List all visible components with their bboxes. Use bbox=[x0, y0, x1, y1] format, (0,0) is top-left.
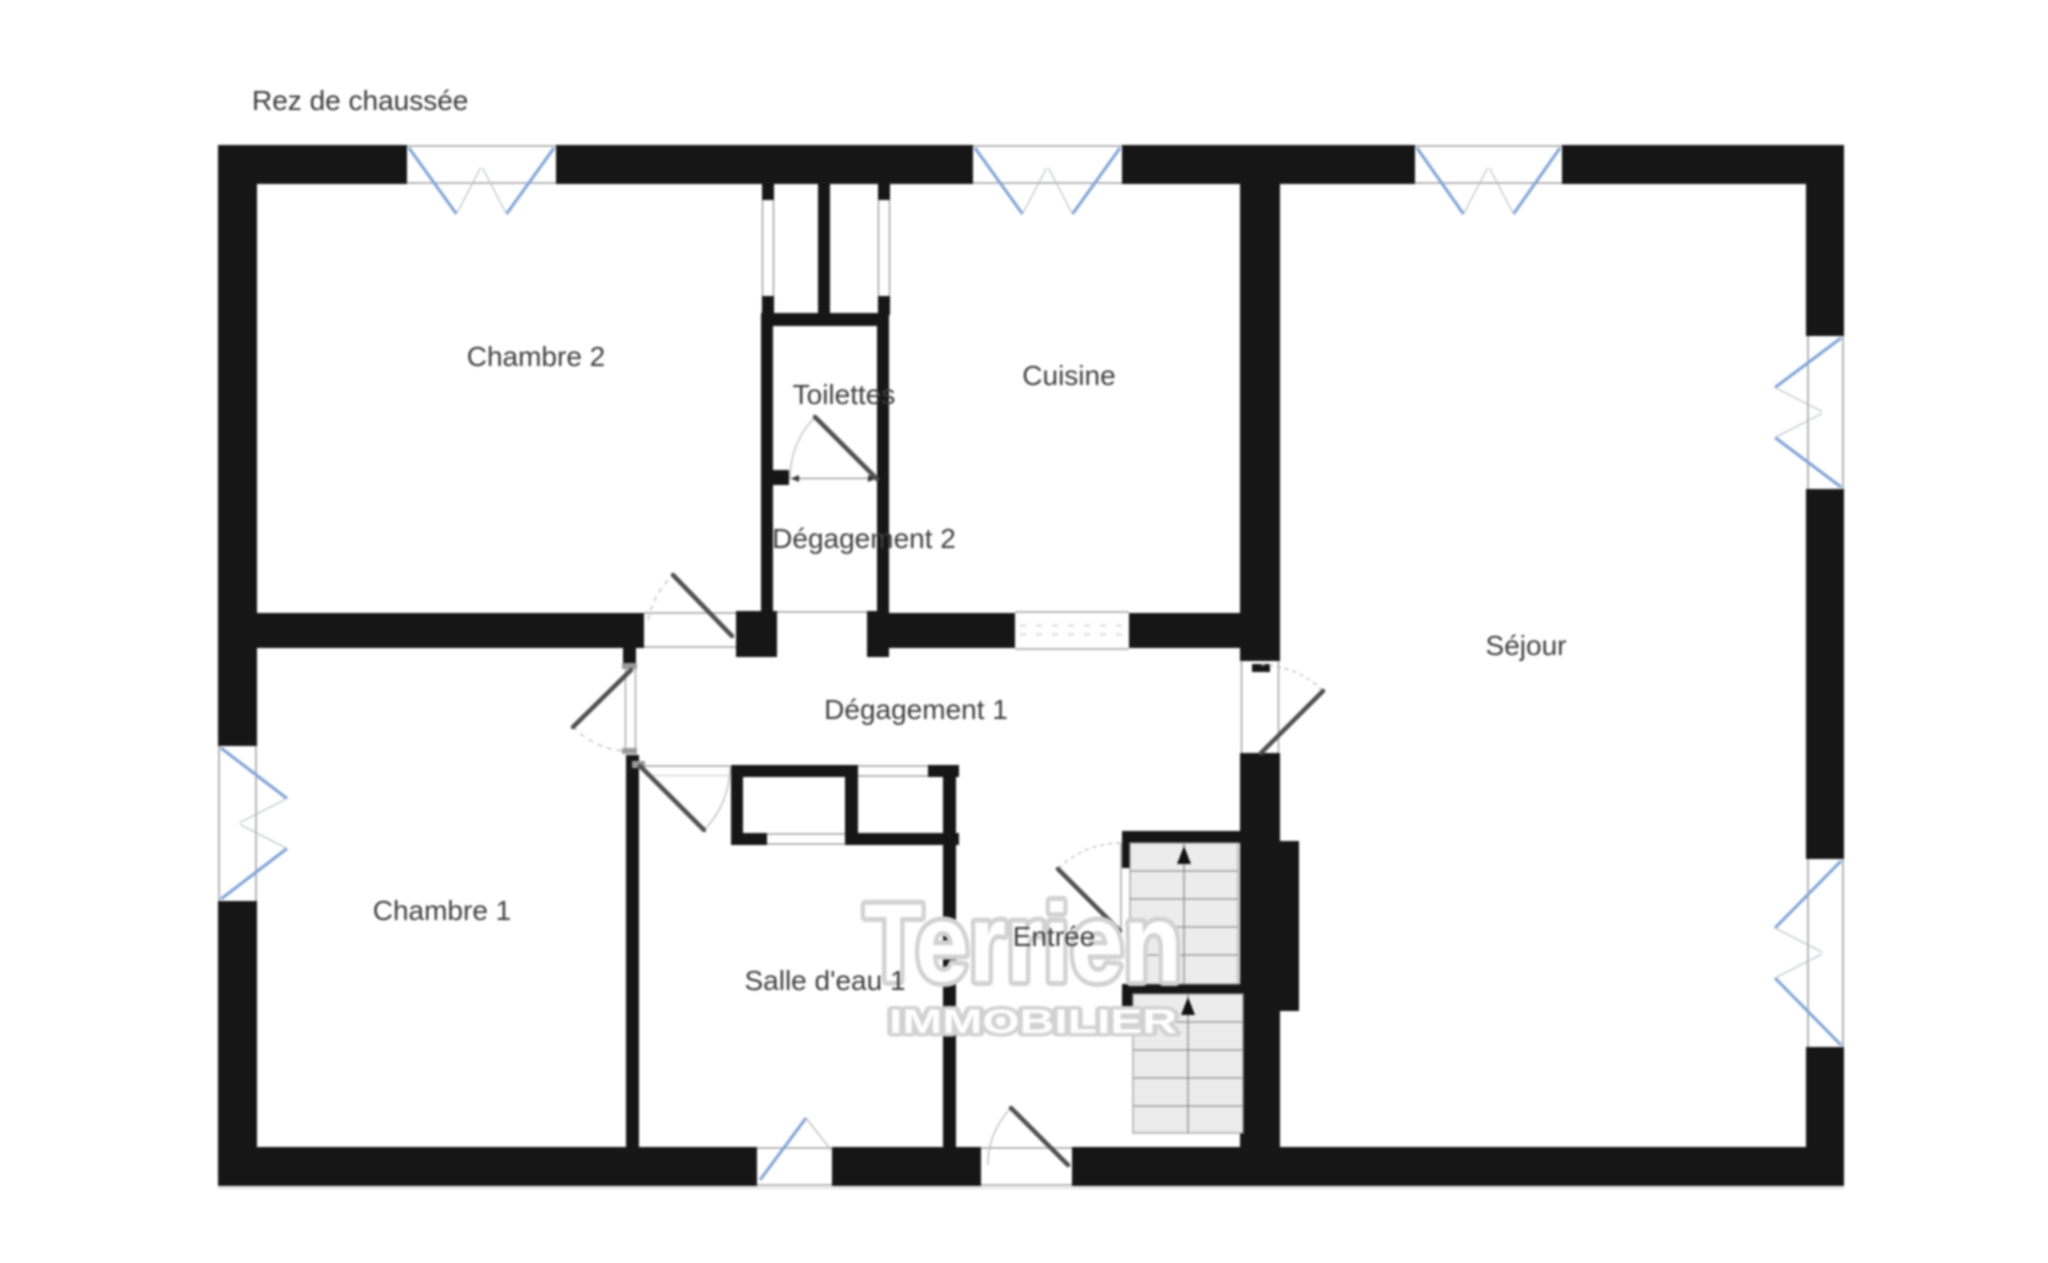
svg-text:Chambre 2: Chambre 2 bbox=[467, 341, 606, 372]
svg-text:Rez de chaussée: Rez de chaussée bbox=[252, 85, 468, 116]
svg-text:Dégagement 1: Dégagement 1 bbox=[824, 694, 1008, 725]
svg-text:Toilettes: Toilettes bbox=[793, 379, 896, 410]
svg-text:Chambre 1: Chambre 1 bbox=[373, 895, 512, 926]
svg-text:IMMOBILIER: IMMOBILIER bbox=[889, 1003, 1177, 1041]
svg-text:Cuisine: Cuisine bbox=[1022, 360, 1115, 391]
svg-text:Entrée: Entrée bbox=[1013, 921, 1096, 952]
svg-text:Séjour: Séjour bbox=[1486, 630, 1567, 661]
svg-text:Dégagement 2: Dégagement 2 bbox=[772, 523, 956, 554]
svg-text:Salle d'eau 1: Salle d'eau 1 bbox=[744, 965, 905, 996]
